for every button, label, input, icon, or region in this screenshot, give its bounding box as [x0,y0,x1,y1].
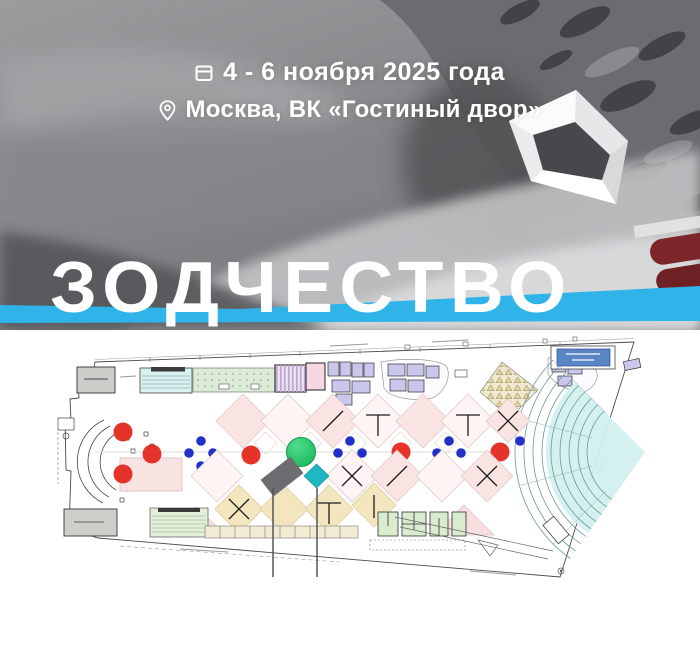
event-dates-row: 4 - 6 ноября 2025 года [195,58,505,87]
location-pin-icon [159,100,176,121]
zone-lecture-hall-bottom [150,508,208,537]
event-location: Москва, ВК «Гостиный двор» [186,96,542,124]
zone-wardrobe-top [77,367,136,393]
event-title: ЗОДЧЕСТВО [50,252,573,324]
zone-green-dotted [193,368,275,392]
calendar-icon [195,64,213,82]
zone-purple-striped [275,363,325,392]
exhibition-poster: 4 - 6 ноября 2025 года Москва, ВК «Гости… [0,0,700,657]
floor-plan-drawing [0,330,700,590]
zone-lecture-hall-left [140,367,192,393]
floor-plan [0,330,700,590]
stand-tatprof [304,464,329,488]
sponsor-logos: Al АЛЮМИНИЕВАЯ АССОЦИАЦИЯ АРХИТЕКТУРНАЯ … [0,578,700,657]
event-location-row: Москва, ВК «Гостиный двор» [159,96,542,124]
stand-diamonds-upper [216,394,530,454]
event-dates: 4 - 6 ноября 2025 года [223,58,505,87]
zone-wardrobe-bottom [64,509,117,536]
event-info: 4 - 6 ноября 2025 года Москва, ВК «Гости… [0,58,700,124]
lecture-hall-blue-box [551,346,615,369]
